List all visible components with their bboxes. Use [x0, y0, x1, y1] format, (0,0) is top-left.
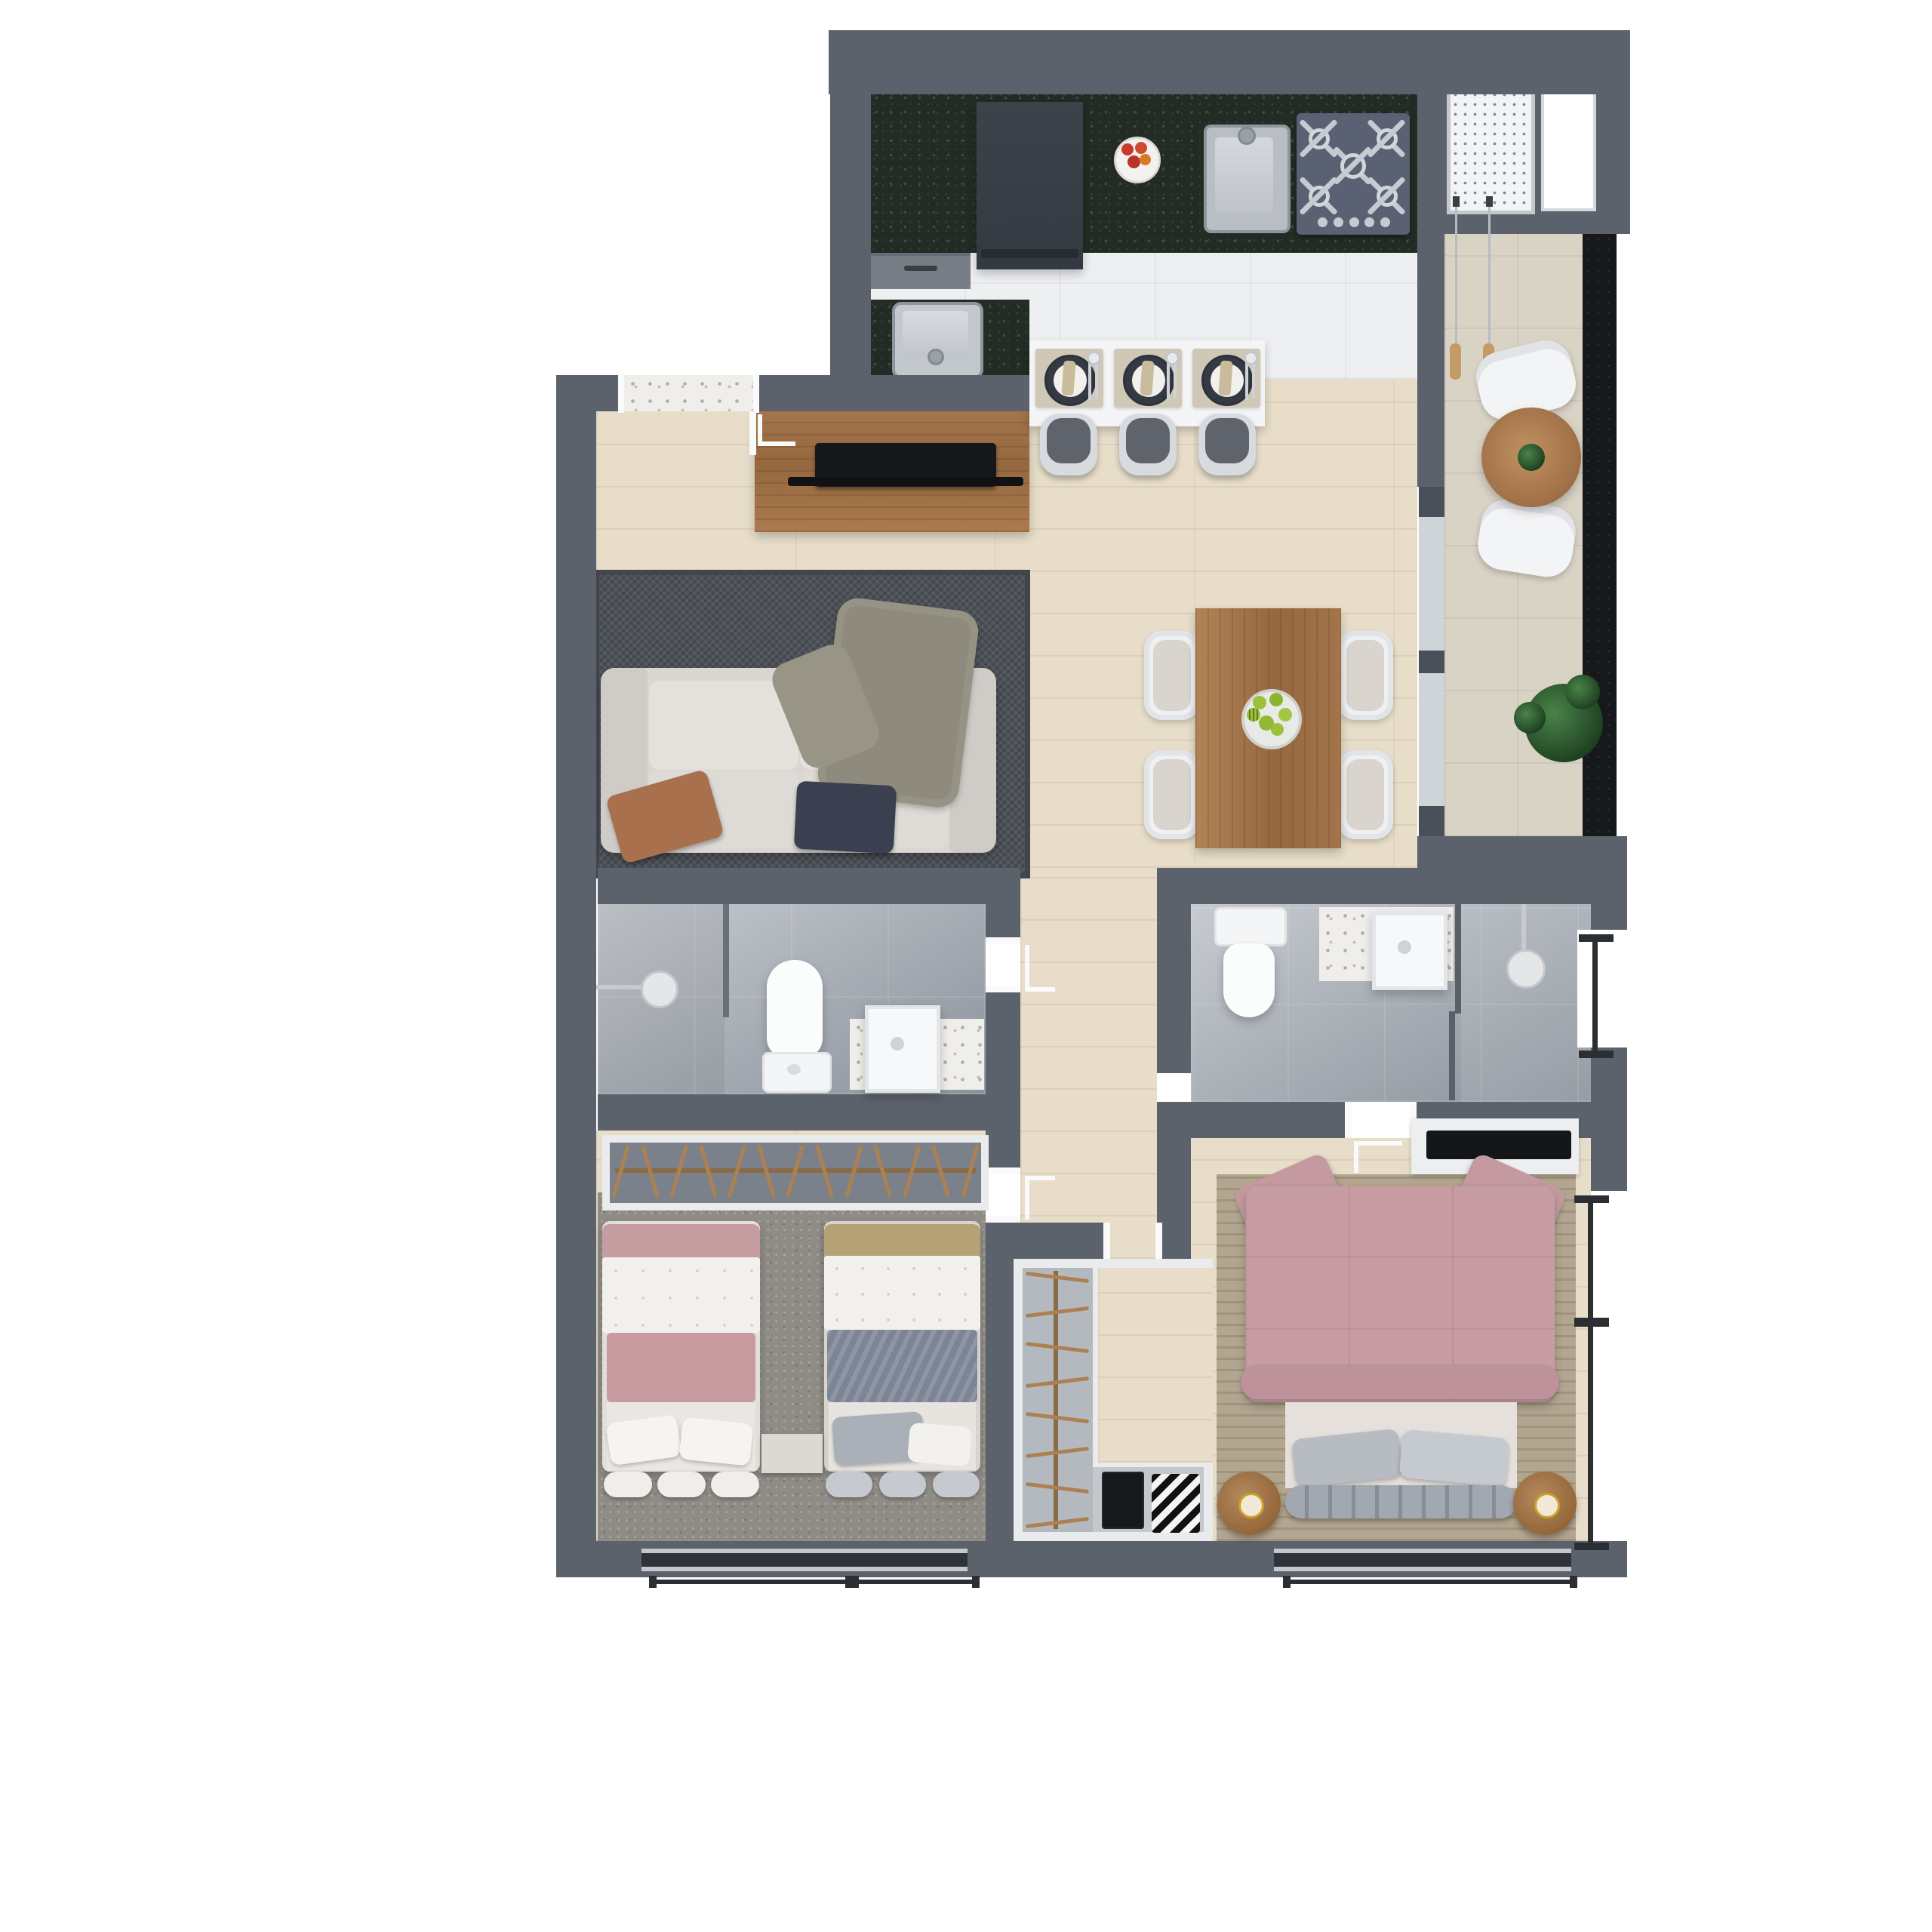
green-apple [1278, 708, 1292, 721]
hanger-icon [932, 1145, 951, 1198]
bed1-bolsters [604, 1472, 759, 1499]
balcony-door-frame [1419, 651, 1444, 673]
bed2-blue-blanket [827, 1330, 977, 1402]
toilet1-flush-icon [787, 1064, 801, 1075]
cooktop [1297, 113, 1410, 235]
green-apple-striped [1247, 708, 1260, 721]
place-setting [1192, 349, 1260, 408]
entry-doormat [624, 375, 753, 411]
appliance-handle [981, 249, 1078, 258]
knob-icon [1380, 217, 1390, 227]
kitchen-sink-basin [1215, 137, 1273, 213]
master-window-glyph-icon [1283, 1576, 1577, 1588]
toilet2-bowl [1223, 943, 1275, 1017]
shower1-arm [596, 985, 643, 989]
red-apple [1128, 155, 1140, 168]
master-pillow-gray-right [1398, 1429, 1509, 1487]
shower1-head-icon [641, 971, 678, 1008]
burner-icon [1300, 119, 1337, 157]
built-in-appliance [977, 102, 1083, 269]
bolster-icon [657, 1472, 706, 1497]
shower2-zone [1461, 904, 1591, 1102]
floor-plan-render [0, 0, 1932, 1932]
laundry-tank [1447, 86, 1535, 214]
bath1-door-frame [986, 986, 1020, 992]
plant-leaf-icon [1565, 675, 1600, 709]
clothesline-cord [1455, 205, 1457, 349]
napkin-icon [1061, 360, 1075, 395]
bolster-icon [879, 1472, 926, 1497]
kids-door-frame [986, 1216, 1020, 1223]
hanger-icon [1026, 1481, 1089, 1493]
lamp-icon [1534, 1493, 1560, 1518]
vanity2-faucet-icon [1398, 940, 1411, 954]
burner-icon [1367, 119, 1405, 157]
peninsula-faucet-icon [928, 349, 944, 365]
green-apple [1271, 723, 1284, 736]
balcony-door-frame [1419, 487, 1444, 517]
kitchen-drawer-unit [871, 253, 971, 289]
shower1-glass [723, 904, 729, 1017]
knob-icon [1349, 217, 1359, 227]
wall-bath1-bottom [598, 1094, 1020, 1131]
bed1-pink-blanket-top [602, 1224, 760, 1259]
hanger-icon [757, 1145, 776, 1198]
master-headboard-bolster [1285, 1485, 1517, 1518]
entry-door-frame [618, 374, 624, 413]
bath2-door-swing-icon [1354, 1141, 1402, 1173]
dining-chair [1337, 750, 1393, 839]
bed2-bolsters [826, 1472, 980, 1499]
vanity1-basin [865, 1005, 940, 1093]
hanger-icon [669, 1145, 688, 1198]
burner-icon [1367, 177, 1405, 214]
table-plant-icon [1518, 444, 1545, 471]
red-apple [1140, 154, 1151, 165]
folded-clothes-black [1102, 1472, 1144, 1529]
toilet2-tank [1214, 907, 1287, 946]
knob-icon [1334, 217, 1343, 227]
vanity1-drain-icon [891, 1037, 904, 1051]
bar-stools [1040, 414, 1256, 475]
master-tv-icon [1426, 1131, 1571, 1159]
wall-corridor-left-a [986, 868, 1020, 943]
burner-icon [1300, 177, 1337, 214]
cooktop-knobs [1318, 217, 1390, 227]
balcony-door-frame [1419, 806, 1444, 836]
place-setting [1035, 349, 1103, 408]
red-apple [1135, 142, 1147, 154]
entry-door-frame [753, 374, 759, 413]
hanger-icon [786, 1145, 805, 1198]
wall-top [829, 30, 1630, 94]
bar-stool [1040, 414, 1097, 475]
tv-mount-bar [788, 477, 1023, 486]
hanger-icon [1026, 1306, 1089, 1318]
hanger-icon [844, 1145, 863, 1198]
master-bed-duvet-fold [1241, 1364, 1559, 1399]
knob-icon [1318, 217, 1327, 227]
master-bottom-window [1274, 1549, 1571, 1571]
master-window-glyph-icon [1574, 1319, 1609, 1550]
napkin-icon [1140, 360, 1154, 395]
place-settings [1035, 349, 1260, 408]
shower2-arm [1521, 904, 1526, 954]
wall-corridor-left-b [986, 992, 1020, 1174]
wall-living-kitchen [753, 375, 1029, 411]
kids-hangers [619, 1144, 972, 1201]
bath1-door-frame [986, 937, 1020, 944]
kids-window [641, 1549, 968, 1571]
hanger-icon [728, 1145, 746, 1198]
place-setting [1114, 349, 1182, 408]
hanger-icon [903, 1145, 921, 1198]
hanger-icon [873, 1145, 892, 1198]
shower2-glass [1455, 904, 1461, 1014]
bolster-icon [711, 1472, 759, 1497]
bed1-pink-blanket [607, 1333, 755, 1402]
shower2-glass [1449, 1011, 1455, 1100]
wall-corridor-right-a [1157, 868, 1191, 1073]
wall-bath2-bottom-left [1157, 1102, 1351, 1138]
drawer-handle [904, 266, 937, 271]
wall-balcony-bottom-patch [1417, 836, 1627, 872]
burner-center-icon [1334, 146, 1371, 184]
suite-door-frame [1155, 1223, 1162, 1259]
shower2-head-icon [1506, 949, 1546, 989]
dining-chair [1337, 631, 1393, 720]
clothesline-cord [1488, 205, 1491, 349]
bed2-pillow-white [907, 1423, 972, 1467]
bar-stool [1119, 414, 1177, 475]
entry-door-leaf [749, 411, 756, 455]
clothesline-hook-icon [1453, 196, 1460, 207]
wall-left [556, 375, 596, 1577]
bath1-door-swing-icon [1025, 945, 1055, 992]
pillow-navy [794, 781, 897, 854]
entry-door-swing-icon [758, 414, 795, 446]
dining-chair [1144, 631, 1200, 720]
glass-icon [1087, 351, 1101, 365]
hanger-icon [641, 1145, 660, 1198]
bed2-tan-blanket-top [824, 1224, 980, 1257]
dining-chair [1144, 750, 1200, 839]
closet-open-floor [1098, 1268, 1213, 1463]
clothesline-hook-icon [1486, 196, 1493, 207]
bath2-door-frame [1345, 1102, 1352, 1138]
bolster-icon [933, 1472, 980, 1497]
bolster-icon [826, 1472, 872, 1497]
wall-suite-entry [986, 1223, 1109, 1259]
red-apple [1121, 143, 1134, 155]
hanger-icon [1026, 1412, 1089, 1423]
glass-icon [1244, 351, 1258, 365]
bar-stool [1198, 414, 1256, 475]
clothesline-handle [1450, 343, 1461, 380]
kitchen-faucet-icon [1238, 127, 1256, 145]
master-window-glyph-icon [1574, 1195, 1609, 1325]
wall-bath-top-right [1157, 868, 1591, 904]
green-apple [1269, 693, 1283, 706]
kids-window-glyph-icon [851, 1576, 980, 1588]
suite-door-frame [1103, 1223, 1110, 1259]
bolster-icon [604, 1472, 652, 1497]
hanger-icon [1026, 1342, 1089, 1353]
kids-nightstand [761, 1434, 823, 1473]
hanger-icon [1026, 1377, 1089, 1388]
service-window [1541, 85, 1596, 211]
toilet1-bowl [767, 960, 823, 1058]
bed1-duvet [602, 1257, 760, 1333]
hanger-icon [815, 1145, 834, 1198]
kids-door-frame [986, 1168, 1020, 1174]
bed2-duvet [824, 1256, 980, 1330]
kids-window-glyph-icon [649, 1576, 853, 1588]
knob-icon [1364, 217, 1374, 227]
hanger-icon [699, 1145, 718, 1198]
wall-service-divider [1417, 234, 1444, 487]
plant-leaf-icon [1514, 702, 1546, 734]
napkin-icon [1218, 360, 1232, 395]
lamp-icon [1238, 1493, 1264, 1518]
hanger-icon [1026, 1447, 1089, 1458]
folded-clothes-chevron [1152, 1474, 1200, 1533]
glass-icon [1165, 351, 1180, 365]
bed1-pillow [678, 1417, 753, 1466]
wall-bath-top-left [598, 868, 1020, 904]
bath2-window-glyph-icon [1579, 934, 1614, 1058]
closet-hangers [1025, 1275, 1090, 1524]
wall-kitchen-left [830, 30, 871, 379]
kids-door-swing-icon [1025, 1176, 1055, 1220]
